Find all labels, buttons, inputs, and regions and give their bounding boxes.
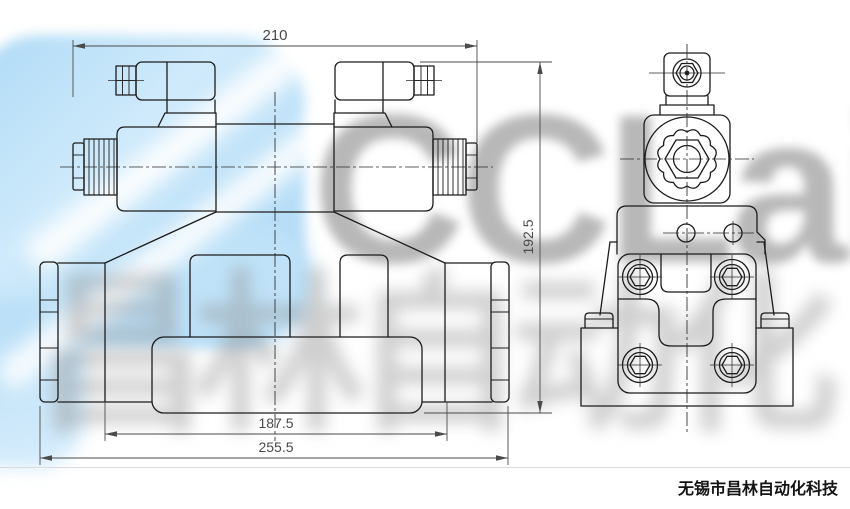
dim-label-210: 210: [262, 27, 287, 44]
dimensions: 210 192.5 187.5: [40, 27, 552, 465]
cad-drawing-svg: 210 192.5 187.5: [0, 0, 850, 509]
port-boss-right: [340, 255, 388, 337]
base-side-plug-left: [585, 313, 613, 328]
valve-engineering-drawing: CCLair 昌林自动化: [0, 0, 850, 509]
socket-bolt: [710, 255, 754, 299]
arrowhead: [435, 431, 447, 436]
dim-label-187-5: 187.5: [258, 415, 293, 431]
socket-bolt: [618, 255, 662, 299]
arrowhead: [105, 431, 117, 436]
left-connector: [108, 62, 215, 113]
face-top-notch: [661, 254, 711, 292]
right-solenoid-coil: [334, 113, 433, 211]
left-connector-neck: [167, 100, 215, 113]
arrowhead: [40, 455, 52, 460]
mounting-base: [40, 255, 509, 413]
socket-bolt: [618, 343, 662, 387]
centerlines: [60, 44, 754, 441]
base-left-cap: [40, 262, 58, 402]
left-connector-block: [136, 62, 215, 100]
base-right-cap: [491, 262, 509, 402]
arrowhead: [537, 401, 542, 413]
arrowhead: [465, 43, 477, 48]
dim-label-192-5: 192.5: [520, 219, 536, 254]
footer-divider: [0, 467, 850, 468]
front-view: [40, 62, 509, 413]
socket-bolt: [710, 343, 754, 387]
base-side-plug-right: [761, 313, 789, 328]
arrowhead: [537, 62, 542, 74]
right-connector-block: [335, 62, 414, 100]
arrowhead: [73, 43, 85, 48]
right-connector-neck: [335, 100, 383, 113]
left-solenoid-coil: [117, 113, 216, 211]
base-front-block: [152, 337, 422, 413]
dim-mid-width: 187.5: [105, 402, 447, 441]
dim-label-255-5: 255.5: [258, 439, 293, 455]
right-connector: [335, 62, 442, 113]
dim-right-height: 192.5: [420, 62, 552, 413]
arrowhead: [496, 455, 508, 460]
company-name: 无锡市昌林自动化科技: [438, 475, 838, 499]
